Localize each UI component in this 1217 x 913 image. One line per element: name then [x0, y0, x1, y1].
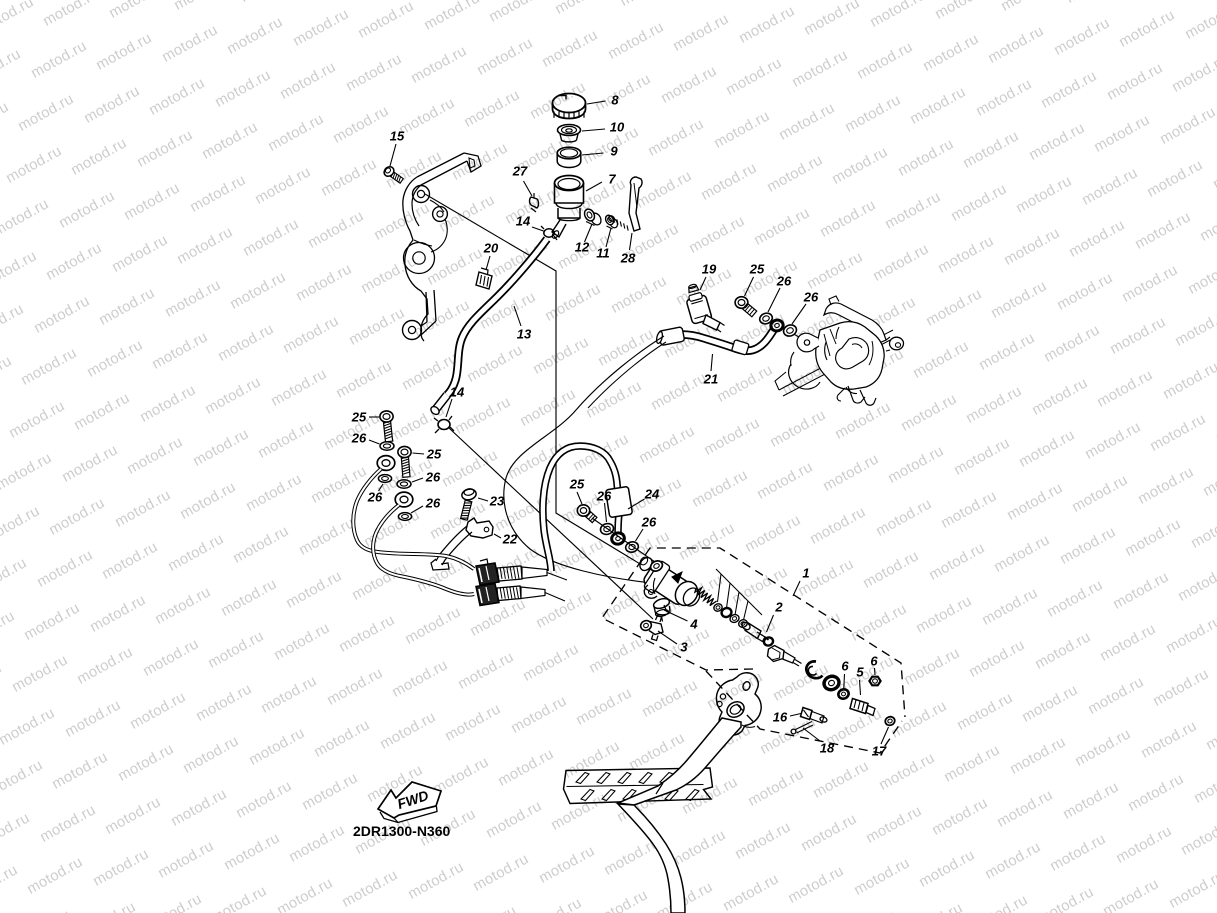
- svg-text:26: 26: [596, 489, 612, 504]
- svg-text:14: 14: [516, 214, 531, 229]
- svg-text:25: 25: [351, 410, 367, 425]
- svg-text:25: 25: [426, 447, 442, 462]
- svg-text:19: 19: [702, 262, 717, 277]
- svg-text:7: 7: [608, 172, 616, 187]
- svg-text:1: 1: [802, 566, 809, 581]
- svg-text:17: 17: [872, 744, 887, 759]
- svg-text:26: 26: [367, 490, 383, 505]
- svg-text:12: 12: [575, 240, 590, 255]
- svg-text:9: 9: [610, 144, 618, 159]
- svg-text:23: 23: [489, 494, 505, 509]
- svg-text:26: 26: [803, 290, 819, 305]
- svg-text:11: 11: [596, 246, 610, 261]
- svg-text:28: 28: [620, 251, 636, 266]
- svg-text:21: 21: [703, 372, 718, 387]
- svg-text:5: 5: [856, 665, 864, 680]
- svg-text:20: 20: [483, 241, 499, 256]
- svg-text:8: 8: [611, 93, 619, 108]
- svg-text:25: 25: [749, 262, 765, 277]
- svg-text:10: 10: [610, 120, 625, 135]
- svg-text:2DR1300-N360: 2DR1300-N360: [353, 823, 450, 839]
- svg-text:26: 26: [425, 496, 441, 511]
- svg-text:24: 24: [644, 487, 660, 502]
- svg-text:13: 13: [517, 327, 532, 342]
- svg-text:26: 26: [425, 470, 441, 485]
- svg-text:18: 18: [820, 741, 835, 756]
- svg-text:26: 26: [641, 515, 657, 530]
- svg-text:6: 6: [841, 659, 849, 674]
- svg-text:26: 26: [351, 431, 367, 446]
- svg-text:26: 26: [776, 274, 792, 289]
- svg-text:14: 14: [450, 385, 465, 400]
- svg-text:27: 27: [512, 164, 528, 179]
- svg-text:16: 16: [773, 710, 788, 725]
- svg-text:2: 2: [774, 600, 783, 615]
- svg-text:3: 3: [680, 640, 688, 655]
- svg-text:6: 6: [870, 654, 878, 669]
- svg-text:15: 15: [390, 129, 405, 144]
- svg-text:4: 4: [689, 617, 698, 632]
- svg-text:25: 25: [569, 477, 585, 492]
